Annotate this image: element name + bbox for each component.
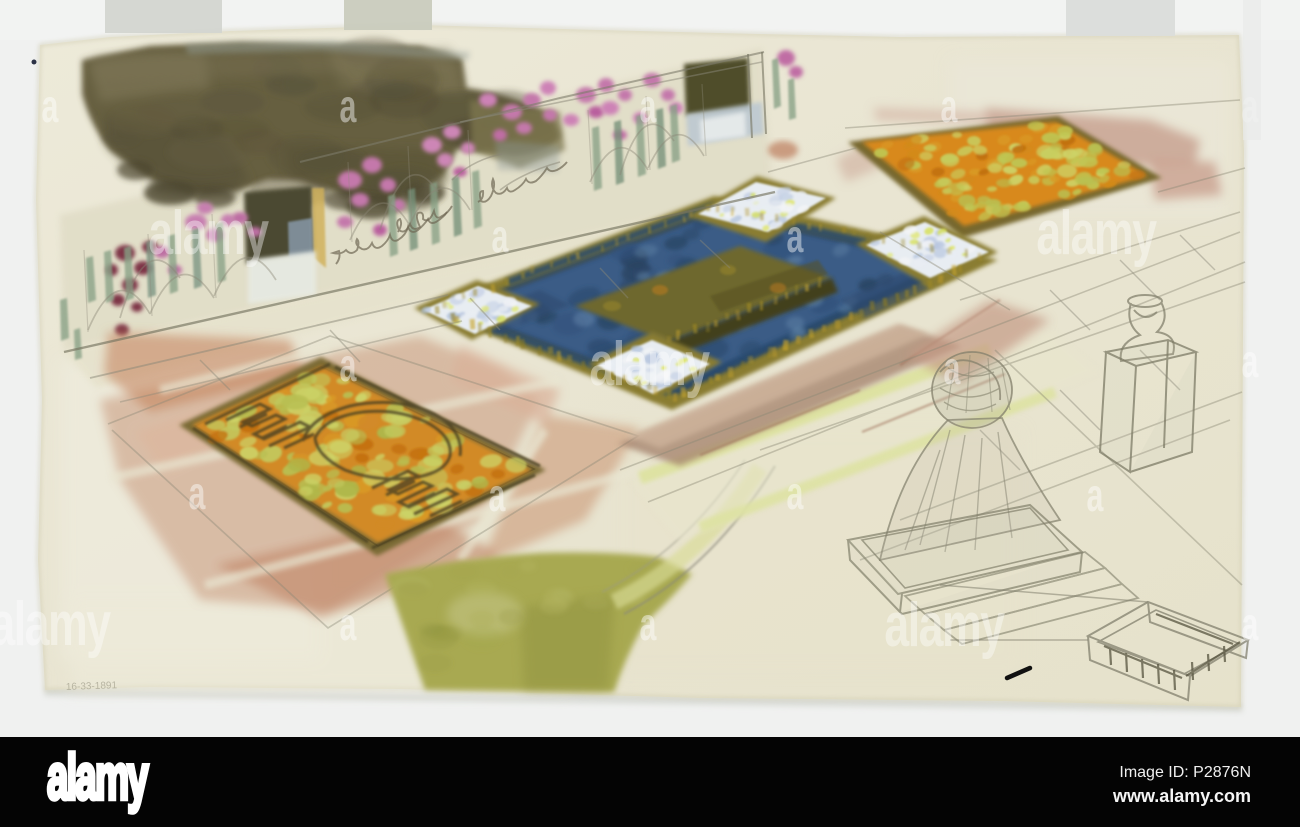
svg-text:Image ID: P2876N: Image ID: P2876N	[1119, 764, 1251, 781]
svg-text:alamy: alamy	[47, 742, 149, 814]
svg-text:a: a	[42, 82, 59, 133]
svg-text:alamy: alamy	[1036, 199, 1157, 268]
svg-text:a: a	[640, 82, 657, 133]
svg-text:16-33-1891: 16-33-1891	[66, 680, 118, 693]
svg-text:a: a	[941, 82, 958, 133]
svg-text:a: a	[340, 600, 357, 651]
svg-text:a: a	[340, 341, 357, 392]
svg-text:alamy: alamy	[589, 330, 710, 399]
svg-text:alamy: alamy	[884, 591, 1005, 660]
svg-text:a: a	[340, 82, 357, 133]
svg-text:a: a	[492, 212, 509, 263]
svg-text:www.alamy.com: www.alamy.com	[1112, 786, 1251, 806]
svg-text:a: a	[640, 600, 657, 651]
svg-text:a: a	[1087, 471, 1104, 522]
svg-text:a: a	[787, 469, 804, 520]
svg-text:a: a	[787, 212, 804, 263]
svg-text:a: a	[1242, 600, 1259, 651]
svg-text:a: a	[189, 469, 206, 520]
svg-text:a: a	[944, 344, 961, 395]
svg-text:a: a	[489, 471, 506, 522]
svg-text:alamy: alamy	[0, 590, 111, 659]
svg-text:alamy: alamy	[148, 199, 269, 268]
svg-text:a: a	[1242, 337, 1259, 388]
